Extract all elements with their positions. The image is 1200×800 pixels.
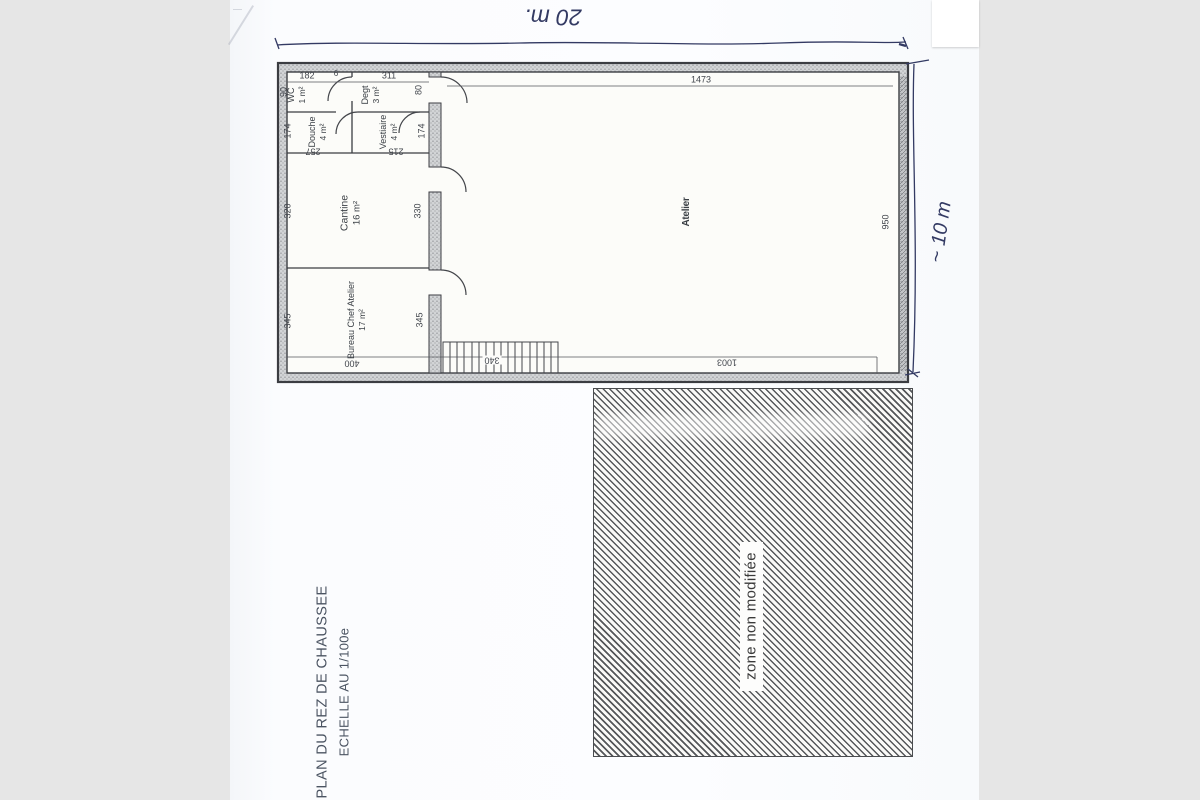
room-label-cantine: Cantine 16 m²: [339, 195, 364, 231]
dim-6: 6: [334, 70, 338, 78]
dim-320: 320: [284, 203, 293, 218]
dim-340: 340: [482, 356, 501, 365]
handwritten-width-20m: 20 m.: [524, 4, 582, 31]
dim-182: 182: [299, 72, 314, 81]
dim-80: 80: [415, 85, 424, 95]
room-label-wc: WC 1 m²: [286, 87, 308, 104]
room-label-vestiaire: Vestiaire 4 m²: [378, 115, 400, 150]
scanned-floor-plan: 182 6 311 1473 90 174 320 345 80 174 330…: [0, 0, 1200, 800]
dim-345-right: 345: [416, 312, 425, 327]
dim-330: 330: [414, 203, 423, 218]
dim-1003: 1003: [717, 358, 737, 367]
dim-345-left: 345: [284, 313, 293, 328]
dim-950: 950: [882, 214, 891, 229]
scan-artifact-band: [598, 414, 868, 438]
plan-title: PLAN DU REZ DE CHAUSSEE: [315, 585, 331, 798]
room-label-atelier: Atelier: [681, 197, 694, 226]
dim-257: 257: [305, 147, 320, 156]
title-block: PLAN DU REZ DE CHAUSSEE ECHELLE AU 1/100…: [315, 585, 352, 798]
scan-overlay-corner: [932, 0, 979, 47]
room-label-douche: Douche 4 m²: [307, 116, 329, 147]
room-label-degagement: Degt 3 m²: [360, 85, 382, 104]
dim-1473: 1473: [691, 76, 711, 85]
dim-174-right: 174: [418, 123, 427, 138]
plan-scale: ECHELLE AU 1/100e: [337, 585, 352, 798]
room-label-bureau-chef-atelier: Bureau Chef Atelier 17 m²: [346, 281, 368, 359]
dim-400: 400: [344, 359, 359, 368]
dim-174-left: 174: [284, 123, 293, 138]
pencil-mark: [233, 9, 242, 10]
zone-label: zone non modifiée: [743, 552, 760, 680]
dim-311: 311: [382, 72, 396, 81]
